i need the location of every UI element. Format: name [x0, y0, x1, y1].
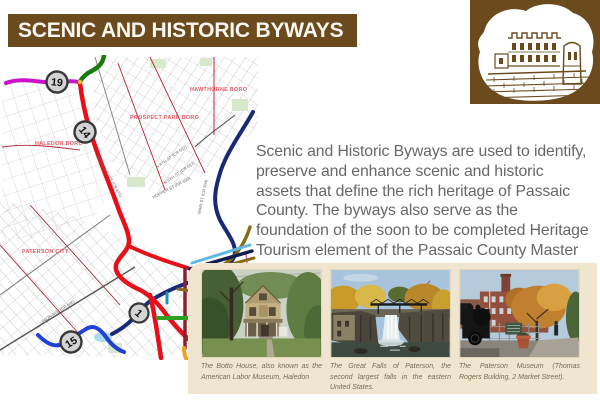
paterson-museum-photo	[459, 269, 580, 358]
label-haledon: HALEDON BORO	[35, 141, 83, 147]
great-falls-photo	[330, 269, 451, 358]
route-marker-19: 19	[45, 70, 68, 93]
lambert-castle-icon	[470, 0, 600, 104]
route-junction-dot	[78, 80, 82, 84]
svg-text:19: 19	[50, 76, 63, 89]
label-paterson: PATERSON CITY	[22, 249, 69, 255]
label-main-st: MAIN ST (CR 504)	[196, 178, 208, 214]
label-hawthorne: HAWTHORNE BORO	[190, 87, 247, 93]
photo-caption: The Great Falls of Paterson, the second …	[330, 362, 451, 394]
byways-page: SCENIC AND HISTORIC BYWAYS	[0, 0, 600, 400]
photo-paterson-museum: The Paterson Museum (Thomas Rogers Build…	[459, 269, 580, 394]
photo-row: The Botto House, also known as the Ameri…	[201, 269, 580, 394]
page-title: SCENIC AND HISTORIC BYWAYS	[18, 19, 343, 43]
photo-gallery-panel: The Botto House, also known as the Ameri…	[188, 263, 597, 394]
label-prospect-park: PROSPECT PARK BORO	[130, 115, 199, 121]
botto-house-photo	[201, 269, 322, 358]
photo-caption: The Paterson Museum (Thomas Rogers Build…	[459, 362, 580, 383]
intro-paragraph: Scenic and Historic Byways are used to i…	[256, 142, 592, 281]
photo-botto-house: The Botto House, also known as the Ameri…	[201, 269, 322, 394]
photo-caption: The Botto House, also known as the Ameri…	[201, 362, 322, 383]
photo-great-falls: The Great Falls of Paterson, the second …	[330, 269, 451, 394]
header-banner: SCENIC AND HISTORIC BYWAYS	[8, 14, 357, 47]
